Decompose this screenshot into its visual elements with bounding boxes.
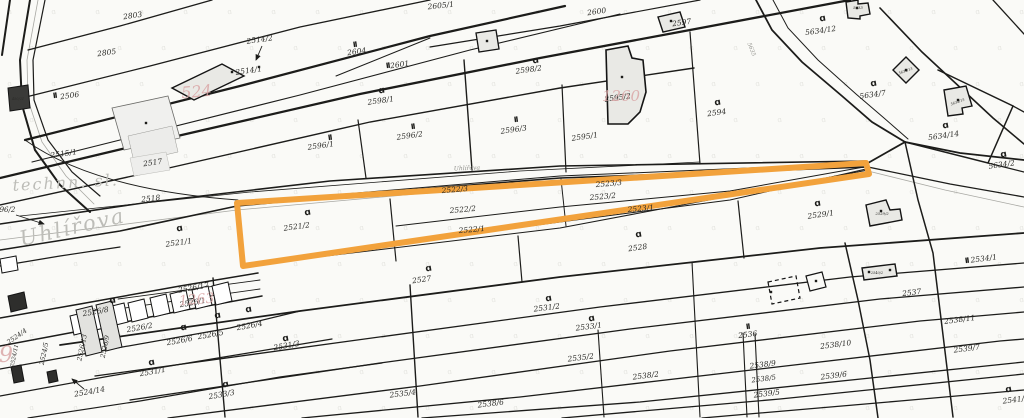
- building-point-symbol: [868, 271, 870, 273]
- landuse-symbol-faint: ɑ: [1019, 80, 1024, 89]
- building-point-symbol: [889, 269, 891, 271]
- building-label: 2540/2: [870, 271, 884, 275]
- building: [150, 294, 170, 317]
- building-point-symbol: [145, 122, 147, 124]
- building: [212, 282, 232, 305]
- building-point-symbol: [486, 40, 488, 42]
- building: [0, 256, 18, 273]
- landuse-symbol-faint: ɑ: [1019, 296, 1024, 305]
- landuse-symbol-faint: ɑ: [1019, 8, 1024, 17]
- parcel-label: 2596/2: [0, 206, 16, 214]
- building-point-symbol: [621, 76, 623, 78]
- building-dark: [47, 370, 58, 383]
- landuse-symbol-faint: ɑ: [1019, 224, 1024, 233]
- house-number-label: 524: [180, 81, 212, 103]
- building-label: 450/21: [11, 97, 24, 101]
- building-label: 5633: [853, 5, 863, 10]
- building-point-symbol: [231, 71, 233, 73]
- house-number-label: 9: [0, 343, 13, 368]
- building: [128, 299, 148, 322]
- cadastral-map-canvas: ɑɑɑɑɑɑɑɑɑɑɑɑɑɑɑɑɑɑɑɑɑɑɑɑɑɑɑɑɑɑɑɑɑɑɑɑɑɑɑɑ…: [0, 0, 1024, 418]
- building-dark: [8, 292, 27, 312]
- building-point-symbol: [815, 280, 817, 282]
- house-number-label: 1260: [602, 87, 641, 105]
- building-label: 2529/2: [874, 211, 889, 216]
- street-name-label: Uhlířova: [454, 165, 481, 173]
- building-point-symbol: [770, 291, 772, 293]
- house-number-label: 1263: [178, 290, 215, 309]
- cadastral-map-viewport[interactable]: ɑɑɑɑɑɑɑɑɑɑɑɑɑɑɑɑɑɑɑɑɑɑɑɑɑɑɑɑɑɑɑɑɑɑɑɑɑɑɑɑ…: [0, 0, 1024, 418]
